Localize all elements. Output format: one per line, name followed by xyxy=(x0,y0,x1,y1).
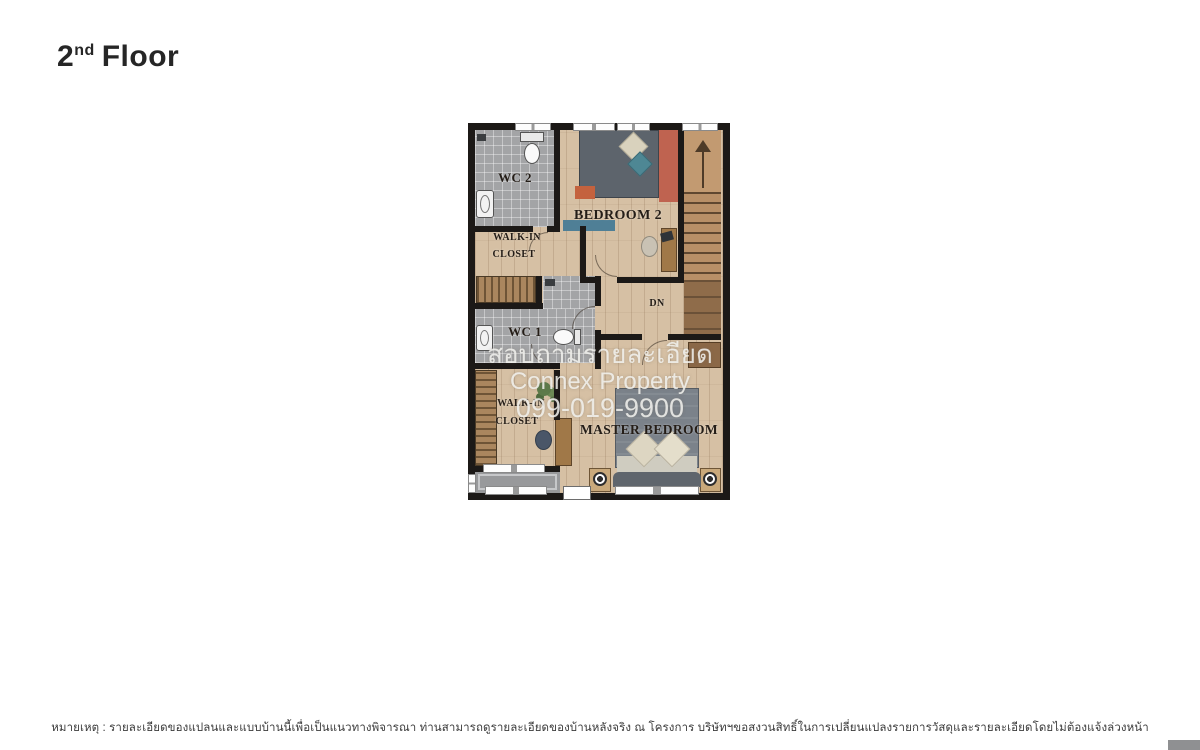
closet2-chair xyxy=(535,430,552,450)
wc1-shower-fixture xyxy=(545,279,555,286)
wc2-sink xyxy=(476,190,494,218)
wc2-sink-basin xyxy=(480,195,490,213)
wall-wc2-right xyxy=(554,130,560,232)
watermark-line2: Connex Property xyxy=(430,369,770,394)
window-balcony-bottom xyxy=(485,486,547,495)
corner-tab xyxy=(1168,740,1200,750)
window-master-bottom xyxy=(615,486,699,495)
staircase-steps xyxy=(684,192,721,280)
title-word: Floor xyxy=(102,40,180,73)
master-lamp-left-icon xyxy=(593,472,607,486)
wc2-label: WC 2 xyxy=(483,170,547,186)
master-lamp-right-icon xyxy=(703,472,717,486)
window-bedroom2-top-b xyxy=(617,123,650,131)
page-title: 2ndFloor xyxy=(57,40,179,74)
window-balcony-inner xyxy=(483,464,545,473)
closet2-dresser xyxy=(555,418,572,466)
closet1-label-line2: CLOSET xyxy=(479,249,549,260)
watermark-line1: สอบถามรายละเอียด xyxy=(430,341,770,367)
bedroom2-rug-orange xyxy=(575,186,595,199)
master-bedroom-label: MASTER BEDROOM xyxy=(579,422,719,438)
bedroom2-chair xyxy=(641,236,658,257)
watermark: สอบถามรายละเอียด Connex Property 099-019… xyxy=(430,341,770,422)
wall-closet1-right xyxy=(580,226,586,283)
stair-up-arrow-icon xyxy=(691,138,715,190)
footer-disclaimer: หมายเหตุ : รายละเอียดของแปลนและแบบบ้านนี… xyxy=(0,719,1200,737)
wc2-shower-fixture xyxy=(477,134,486,141)
window-balcony-left xyxy=(468,474,476,493)
bedroom2-accent-wall xyxy=(659,130,678,202)
bedroom2-label: BEDROOM 2 xyxy=(563,208,673,224)
wc2-toilet-bowl xyxy=(524,143,540,164)
door-arc-bedroom2 xyxy=(595,255,617,277)
wall-bedroom2-bottom-b xyxy=(617,277,684,283)
wc1-label: WC 1 xyxy=(497,324,553,340)
window-stairs-top xyxy=(682,123,718,131)
closet1-wardrobe xyxy=(476,276,536,303)
bottom-door-step xyxy=(563,486,591,500)
stairs-down-label: DN xyxy=(643,298,671,309)
wc2-toilet-tank xyxy=(520,132,544,142)
master-headboard xyxy=(613,472,701,487)
title-number: 2 xyxy=(57,40,74,73)
closet1-label-line1: WALK-IN xyxy=(479,232,555,243)
staircase-lower-landing xyxy=(684,280,721,334)
wall-wc1-right-a xyxy=(595,276,601,306)
window-wc2-top xyxy=(515,123,551,131)
window-bedroom2-top-a xyxy=(573,123,615,131)
watermark-line3: 099-019-9900 xyxy=(430,395,770,422)
wall-wc1-top xyxy=(475,303,543,309)
title-ordinal: nd xyxy=(74,42,95,59)
floor-plan: WC 2 BEDROOM 2 WALK-IN CLOSET WC 1 DN WA… xyxy=(468,123,730,500)
wall-stairs-left xyxy=(678,130,684,280)
